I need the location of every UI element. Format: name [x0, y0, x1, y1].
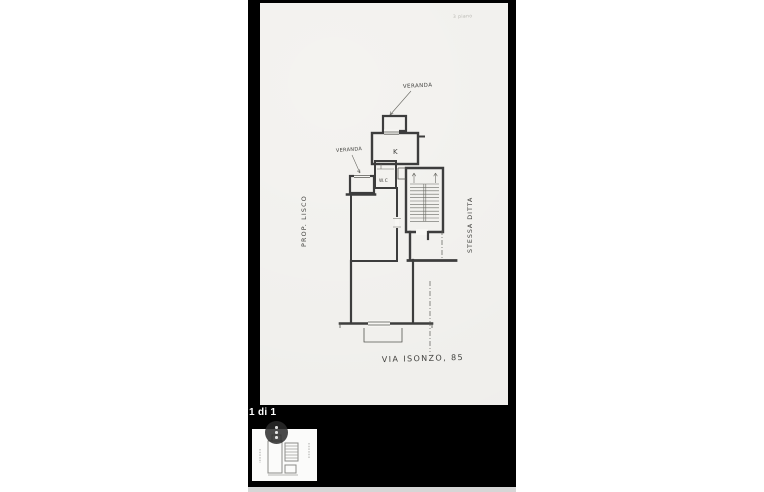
- lower-room: [351, 260, 413, 323]
- kitchen-label: K: [393, 148, 398, 156]
- document-viewer: 3 piano PROP. LISCO STESSA DITTA VERANDA…: [248, 0, 516, 492]
- dot: [275, 431, 278, 434]
- balcony: [364, 328, 402, 342]
- staircase-center-line: [424, 184, 426, 221]
- scrollbar[interactable]: [248, 487, 516, 492]
- owner-left-label: PROP. LISCO: [301, 195, 308, 247]
- staircase-landing: [398, 168, 406, 179]
- floor-note-label: 3 piano: [453, 13, 473, 20]
- wc-label: W.C: [379, 178, 388, 184]
- veranda-top-label: VERANDA: [403, 82, 433, 90]
- vertical-dots-icon[interactable]: [265, 421, 288, 444]
- dot: [275, 436, 278, 439]
- page-indicator: 1 di 1: [249, 407, 276, 418]
- floorplan-page[interactable]: 3 piano PROP. LISCO STESSA DITTA VERANDA…: [260, 3, 508, 405]
- veranda-left-label: VERANDA: [336, 146, 363, 154]
- dot: [275, 426, 278, 429]
- address-label: VIA ISONZO, 85: [382, 353, 464, 364]
- staircase-treads: [410, 184, 439, 221]
- floorplan-drawing: 3 piano PROP. LISCO STESSA DITTA VERANDA…: [260, 3, 508, 405]
- middle-room: [351, 188, 397, 261]
- staircase-outline: [406, 168, 443, 232]
- firm-right-label: STESSA DITTA: [467, 197, 474, 253]
- staircase-direction-arrows-icon: [412, 173, 437, 183]
- veranda-top-room: [383, 116, 406, 131]
- veranda-left-leader-arrow-icon: [352, 155, 360, 173]
- veranda-top-leader-arrow-icon: [390, 91, 411, 115]
- veranda-left-room: [350, 176, 374, 193]
